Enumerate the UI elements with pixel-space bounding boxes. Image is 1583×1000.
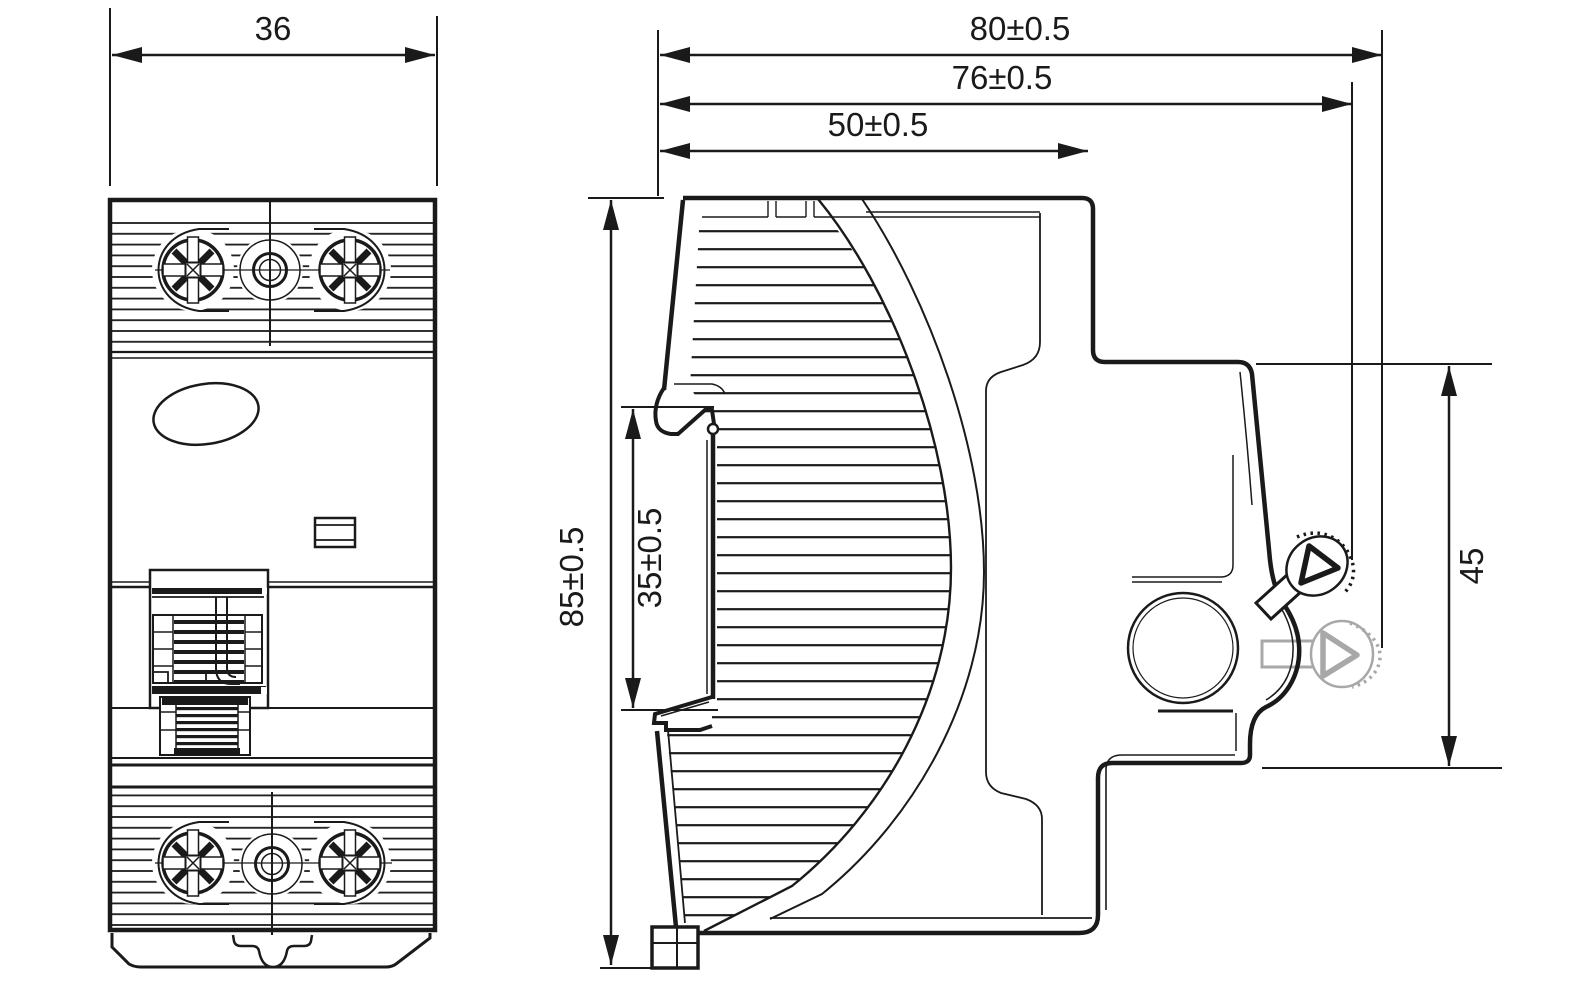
dimension-front-width: 36 xyxy=(110,8,437,186)
front-view: 36 xyxy=(110,8,437,967)
arrowhead-down-icon xyxy=(625,678,641,708)
arrowhead-up-icon xyxy=(603,200,619,230)
arrowhead-left-icon xyxy=(112,47,142,63)
arrowhead-up-icon xyxy=(625,409,641,439)
screw-bottom-left xyxy=(163,830,223,896)
indicator-window xyxy=(315,518,355,547)
screw-top-right xyxy=(320,237,380,303)
inner-wall-contour xyxy=(986,213,1042,915)
arrowhead-left-icon xyxy=(660,47,690,63)
dim-label-76: 76±0.5 xyxy=(952,59,1053,96)
front-mounting-foot xyxy=(112,933,430,967)
switch-assembly xyxy=(150,570,268,755)
drawing-canvas: 36 xyxy=(0,0,1583,1000)
arrowhead-right-icon xyxy=(1322,96,1352,112)
dim-label-50: 50±0.5 xyxy=(828,106,929,143)
din-hook-bottom xyxy=(654,697,712,730)
dimension-recess-height: 35±0.5 xyxy=(621,407,718,710)
dim-label-80: 80±0.5 xyxy=(970,10,1071,47)
dim-label-35: 35±0.5 xyxy=(631,508,668,609)
dim-label-36: 36 xyxy=(255,10,292,47)
arrowhead-left-icon xyxy=(660,96,690,112)
rocker-ribs-upper xyxy=(174,616,244,682)
rocker-ribs-lower xyxy=(176,706,238,748)
cooling-fins xyxy=(667,221,951,929)
din-clip-tab xyxy=(233,935,312,967)
din-clip-foot xyxy=(652,927,698,968)
arrowhead-down-icon xyxy=(1441,736,1457,766)
arrowhead-right-icon xyxy=(405,47,435,63)
arrowhead-down-icon xyxy=(603,935,619,965)
label-oval xyxy=(149,376,263,452)
dim-label-45: 45 xyxy=(1453,548,1490,585)
housing-seam-ticks xyxy=(768,201,814,217)
arrowhead-left-icon xyxy=(660,143,690,159)
side-view: 80±0.5 76±0.5 50±0.5 45 85±0.5 xyxy=(553,10,1502,968)
toggle-lever-alt-position xyxy=(1262,621,1380,687)
screw-bottom-right xyxy=(320,830,380,896)
arrowhead-up-icon xyxy=(1441,366,1457,396)
dim-label-85: 85±0.5 xyxy=(553,527,590,628)
arrowhead-right-icon xyxy=(1058,143,1088,159)
screw-top-left xyxy=(163,237,223,303)
toggle-boss-circle xyxy=(1128,593,1238,703)
arrowhead-right-icon xyxy=(1352,47,1382,63)
dimension-body-depth: 50±0.5 xyxy=(660,106,1088,159)
technical-drawing: 36 xyxy=(0,0,1583,1000)
